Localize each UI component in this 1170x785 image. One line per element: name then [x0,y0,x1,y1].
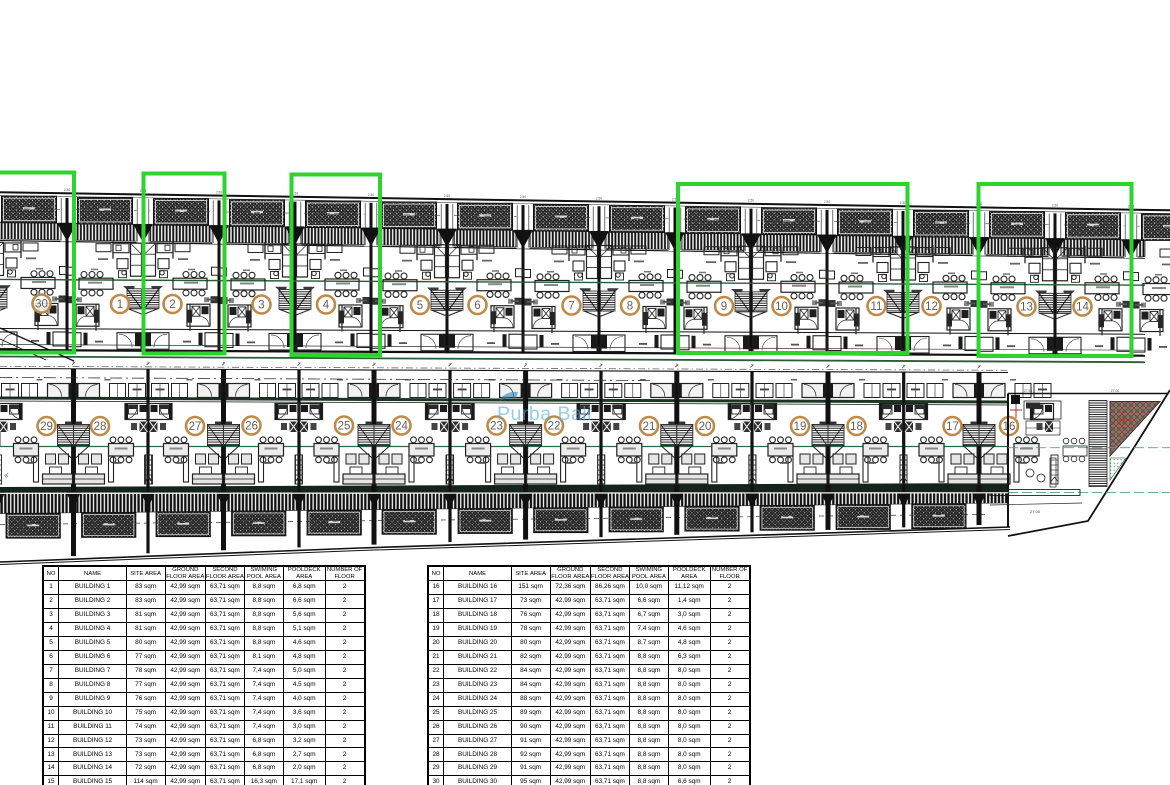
svg-text:2.50: 2.50 [216,190,222,194]
svg-text:27.00: 27.00 [1111,389,1120,393]
svg-text:25: 25 [338,421,351,433]
svg-text:7: 7 [568,301,574,313]
svg-text:30: 30 [35,299,48,311]
svg-text:8°: 8° [4,472,11,480]
svg-text:28: 28 [94,421,107,433]
svg-text:12: 12 [925,301,938,313]
svg-text:2.50: 2.50 [748,199,754,203]
svg-text:2.50: 2.50 [596,196,602,200]
svg-text:10: 10 [775,301,788,313]
svg-text:2.50: 2.50 [520,195,526,199]
svg-text:27.05: 27.05 [1030,509,1041,514]
svg-text:21: 21 [643,421,656,433]
svg-text:29: 29 [40,421,53,433]
svg-text:2.50: 2.50 [444,194,450,198]
svg-text:27.50: 27.50 [1024,389,1033,393]
svg-text:8: 8 [627,301,633,313]
svg-text:1: 1 [117,299,123,311]
svg-text:4: 4 [323,300,330,312]
svg-text:2.50: 2.50 [368,193,374,197]
svg-text:3: 3 [258,300,264,312]
svg-text:Purba Bali: Purba Bali [497,403,592,425]
svg-text:2.50: 2.50 [900,201,906,205]
svg-text:24: 24 [395,421,408,433]
svg-text:19: 19 [794,421,807,433]
svg-text:11: 11 [871,301,883,313]
svg-text:17: 17 [946,421,959,433]
svg-text:2.50: 2.50 [824,200,830,204]
svg-text:2: 2 [169,299,175,311]
svg-text:13: 13 [1020,302,1033,314]
svg-text:2.50: 2.50 [1052,203,1058,207]
svg-text:14: 14 [1076,302,1089,314]
svg-text:9: 9 [721,301,727,313]
svg-text:18: 18 [850,421,863,433]
svg-text:6: 6 [474,300,480,312]
svg-text:2.50: 2.50 [64,188,70,192]
svg-text:5: 5 [417,300,423,312]
svg-text:26: 26 [245,421,258,433]
svg-text:20: 20 [699,421,712,433]
svg-text:27: 27 [189,421,202,433]
